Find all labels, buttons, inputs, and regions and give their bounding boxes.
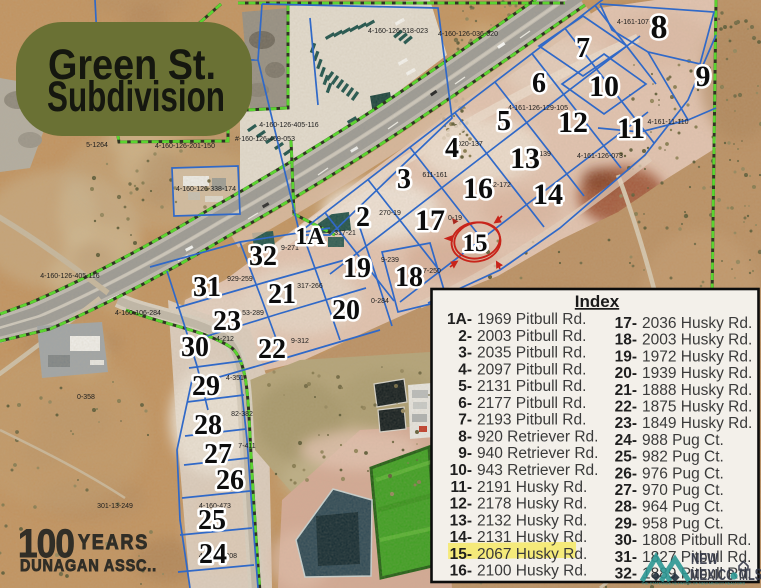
svg-text:982 Pug Ct.: 982 Pug Ct. [642, 449, 724, 466]
svg-text:2178 Husky Rd.: 2178 Husky Rd. [477, 496, 587, 513]
svg-text:16: 16 [463, 172, 493, 205]
svg-text:4-160-126-338-174: 4-160-126-338-174 [176, 186, 236, 193]
svg-text:4: 4 [445, 133, 459, 164]
svg-text:9-: 9- [458, 445, 472, 462]
svg-text:13: 13 [510, 142, 540, 175]
svg-text:THE STATEWIDE NETWORK OF NEW M: THE STATEWIDE NETWORK OF NEW MEXICO REAL… [641, 582, 746, 586]
svg-text:18-: 18- [615, 332, 637, 349]
svg-text:4-160-126-405-116: 4-160-126-405-116 [259, 122, 319, 129]
svg-text:4-160-106-284: 4-160-106-284 [115, 310, 161, 317]
svg-text:YEARS: YEARS [78, 531, 149, 554]
svg-text:14: 14 [533, 178, 563, 211]
svg-text:27: 27 [204, 439, 232, 470]
svg-text:2191 Husky Rd.: 2191 Husky Rd. [477, 479, 587, 496]
svg-text:26-: 26- [615, 465, 637, 482]
svg-text:4-160-126-405-116: 4-160-126-405-116 [40, 273, 100, 280]
svg-text:22: 22 [258, 334, 286, 365]
svg-text:7: 7 [576, 33, 590, 64]
svg-text:13-: 13- [450, 512, 472, 529]
svg-text:15: 15 [463, 230, 488, 257]
svg-text:2067 Husky Rd.: 2067 Husky Rd. [477, 546, 587, 563]
svg-text:29-: 29- [615, 515, 637, 532]
svg-text:301-13-249: 301-13-249 [97, 503, 133, 510]
svg-text:1849 Husky Rd.: 1849 Husky Rd. [642, 415, 752, 432]
svg-text:24-: 24- [615, 432, 637, 449]
svg-text:21: 21 [268, 279, 296, 310]
svg-text:30-: 30- [615, 532, 637, 549]
svg-text:2003 Husky Rd.: 2003 Husky Rd. [642, 332, 752, 349]
svg-text:11-: 11- [450, 479, 472, 496]
svg-text:1888 Husky Rd.: 1888 Husky Rd. [642, 382, 752, 399]
svg-text:18: 18 [395, 262, 423, 293]
svg-text:929-259: 929-259 [227, 276, 253, 283]
svg-text:988 Pug Ct.: 988 Pug Ct. [642, 432, 724, 449]
svg-text:31-: 31- [615, 549, 637, 566]
svg-text:7-411: 7-411 [238, 443, 255, 450]
svg-text:1A-: 1A- [447, 311, 472, 328]
svg-text:2131 Pitbull Rd.: 2131 Pitbull Rd. [477, 378, 586, 395]
svg-text:1969 Pitbull Rd.: 1969 Pitbull Rd. [477, 311, 586, 328]
svg-text:NEW: NEW [691, 551, 718, 568]
svg-text:#-160-126-469-053: #-160-126-469-053 [235, 136, 295, 143]
svg-text:24: 24 [199, 539, 227, 570]
svg-text:23: 23 [213, 306, 241, 337]
svg-text:22-: 22- [615, 399, 637, 416]
svg-text:1972 Husky Rd.: 1972 Husky Rd. [642, 348, 752, 365]
svg-text:17: 17 [415, 204, 445, 237]
svg-text:6: 6 [532, 68, 546, 99]
svg-text:20-: 20- [615, 365, 637, 382]
svg-text:970 Pug Ct.: 970 Pug Ct. [642, 482, 724, 499]
svg-text:29: 29 [192, 371, 220, 402]
svg-text:4-160-126-036-020: 4-160-126-036-020 [438, 31, 498, 38]
svg-text:25-: 25- [615, 449, 637, 466]
svg-text:2177 Pitbull Rd.: 2177 Pitbull Rd. [477, 395, 586, 412]
svg-text:19: 19 [343, 253, 371, 284]
svg-text:1808 Pitbull Rd.: 1808 Pitbull Rd. [642, 532, 751, 549]
svg-text:4-: 4- [458, 361, 472, 378]
svg-text:9: 9 [696, 60, 711, 93]
svg-text:2131 Husky Rd.: 2131 Husky Rd. [477, 529, 587, 546]
svg-text:32: 32 [249, 241, 277, 272]
svg-text:3-: 3- [458, 345, 472, 362]
svg-text:12-: 12- [450, 496, 472, 513]
svg-text:5: 5 [497, 106, 511, 137]
svg-text:6-: 6- [458, 395, 472, 412]
svg-text:21-: 21- [615, 382, 637, 399]
svg-text:11: 11 [617, 112, 645, 145]
svg-text:2: 2 [356, 202, 370, 233]
svg-text:020-137: 020-137 [457, 141, 483, 148]
svg-text:317-266: 317-266 [297, 283, 323, 290]
svg-text:Index: Index [575, 292, 620, 311]
svg-text:2193 Pitbull Rd.: 2193 Pitbull Rd. [477, 412, 586, 429]
svg-text:943 Retriever Rd.: 943 Retriever Rd. [477, 462, 598, 479]
svg-text:19-: 19- [615, 348, 637, 365]
svg-text:2100 Husky Rd.: 2100 Husky Rd. [477, 563, 587, 580]
svg-text:5-1264: 5-1264 [86, 142, 108, 149]
svg-text:82-382: 82-382 [231, 411, 253, 418]
svg-text:1875 Husky Rd.: 1875 Husky Rd. [642, 399, 752, 416]
svg-text:940 Retriever Rd.: 940 Retriever Rd. [477, 445, 598, 462]
svg-text:3: 3 [397, 164, 411, 195]
svg-text:1939 Husky Rd.: 1939 Husky Rd. [642, 365, 752, 382]
svg-text:12: 12 [558, 106, 588, 139]
svg-text:4-160-126-518-023: 4-160-126-518-023 [368, 28, 428, 35]
svg-text:28: 28 [194, 410, 222, 441]
svg-text:2036 Husky Rd.: 2036 Husky Rd. [642, 315, 752, 332]
svg-text:Subdivision: Subdivision [47, 73, 225, 121]
svg-text:4-161-11-110: 4-161-11-110 [648, 119, 689, 126]
svg-text:0-358: 0-358 [77, 394, 95, 401]
svg-text:4-351: 4-351 [226, 375, 244, 382]
svg-text:4-161-126-073: 4-161-126-073 [577, 153, 623, 160]
svg-text:28-: 28- [615, 499, 637, 516]
svg-text:17-: 17- [615, 315, 637, 332]
svg-text:958 Pug Ct.: 958 Pug Ct. [642, 515, 724, 532]
svg-text:2097 Pitbull Rd.: 2097 Pitbull Rd. [477, 361, 586, 378]
svg-text:4-212: 4-212 [216, 336, 234, 343]
svg-text:16-: 16- [450, 563, 472, 580]
svg-text:5-: 5- [458, 378, 472, 395]
svg-text:15-: 15- [450, 546, 472, 563]
svg-text:20: 20 [332, 295, 360, 326]
svg-text:2003 Pitbull Rd.: 2003 Pitbull Rd. [477, 328, 586, 345]
svg-text:DUNAGAN ASSC..: DUNAGAN ASSC.. [20, 556, 157, 575]
svg-text:0-284: 0-284 [371, 298, 389, 305]
svg-text:8-: 8- [458, 429, 472, 446]
svg-text:25: 25 [198, 505, 226, 536]
svg-text:976 Pug Ct.: 976 Pug Ct. [642, 465, 724, 482]
svg-text:30: 30 [181, 332, 209, 363]
svg-text:317-21: 317-21 [334, 230, 356, 237]
svg-text:31: 31 [193, 272, 221, 303]
svg-text:27-: 27- [615, 482, 637, 499]
svg-text:53-289: 53-289 [242, 310, 264, 317]
svg-text:920 Retriever Rd.: 920 Retriever Rd. [477, 429, 598, 446]
svg-text:8: 8 [651, 9, 668, 46]
svg-text:10: 10 [589, 70, 619, 103]
svg-text:14-: 14- [450, 529, 472, 546]
svg-text:2035 Pitbull Rd.: 2035 Pitbull Rd. [477, 345, 586, 362]
svg-text:9-312: 9-312 [291, 338, 309, 345]
svg-text:964 Pug Ct.: 964 Pug Ct. [642, 499, 724, 516]
svg-text:10-: 10- [450, 462, 472, 479]
svg-text:2-: 2- [458, 328, 472, 345]
svg-text:7-: 7- [458, 412, 472, 429]
svg-text:32-: 32- [615, 566, 637, 583]
svg-text:1A: 1A [295, 224, 325, 250]
svg-text:611-161: 611-161 [422, 172, 447, 179]
svg-text:2132 Husky Rd.: 2132 Husky Rd. [477, 512, 587, 529]
svg-text:23-: 23- [615, 415, 637, 432]
svg-text:4-160-126-201-150: 4-160-126-201-150 [155, 143, 215, 150]
svg-text:270-19: 270-19 [379, 210, 401, 217]
